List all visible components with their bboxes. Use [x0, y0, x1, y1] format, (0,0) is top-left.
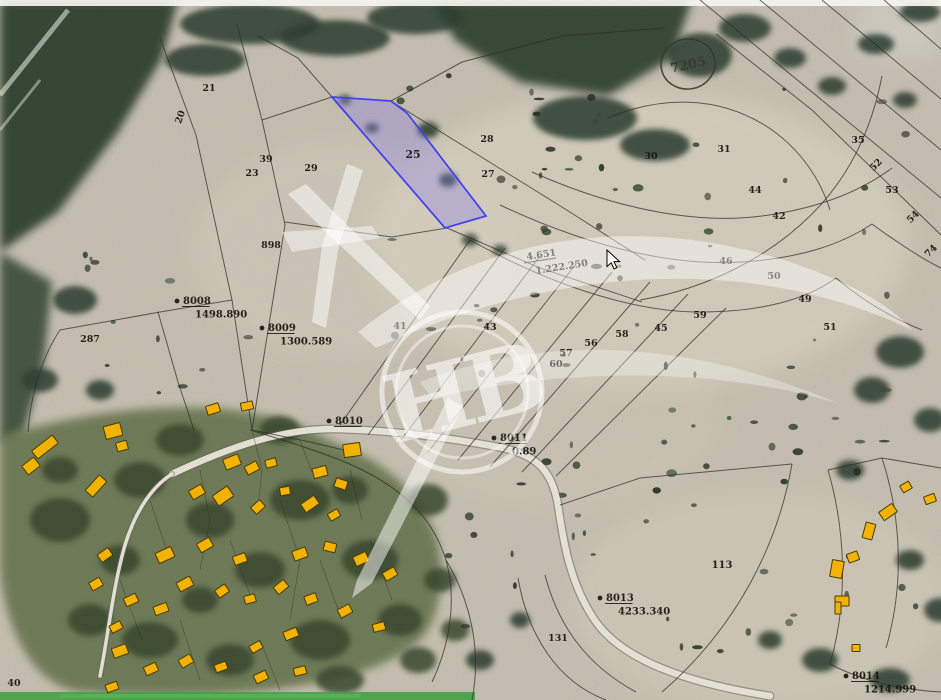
field-bush [693, 143, 700, 148]
tree-clump [316, 666, 364, 694]
field-bush [513, 582, 517, 589]
field-bush [813, 339, 816, 342]
parcel-number-label: 39 [259, 154, 273, 165]
cadastral-map-svg: 2021392329898287252728303135525354744442… [0, 0, 941, 700]
field-bush [780, 479, 788, 485]
field-bush [90, 260, 99, 265]
building-footprint [343, 442, 362, 457]
field-bush [653, 487, 661, 493]
survey-point-value: 1498.890 [195, 310, 247, 321]
tree-clump [896, 550, 924, 570]
field-bush [165, 278, 175, 284]
parcel-number-label: 44 [748, 185, 762, 196]
field-bush [157, 391, 161, 394]
tree-clump [114, 462, 166, 498]
survey-point-id: 8014 [852, 671, 880, 682]
field-bush [387, 238, 397, 241]
tree-clump [758, 631, 782, 649]
field-bush [717, 649, 724, 653]
survey-point-dot [598, 596, 603, 601]
tree-clump [206, 644, 254, 676]
field-bush [680, 643, 684, 651]
parcel-number-label: 23 [245, 168, 258, 179]
field-bush [583, 530, 586, 536]
field-bush [783, 178, 788, 183]
field-bush [445, 553, 452, 558]
survey-point-id: 8010 [335, 416, 363, 427]
parcel-number-label: 59 [693, 310, 707, 321]
tree-clump [441, 619, 469, 641]
tree-clump [290, 620, 350, 660]
tree-clump [466, 650, 494, 670]
top-white-strip [0, 0, 941, 6]
field-bush [661, 440, 667, 445]
field-bush [533, 112, 541, 117]
field-bush [793, 448, 804, 455]
field-bush [879, 440, 890, 443]
building-footprint [830, 560, 845, 579]
field-bush [704, 193, 711, 201]
survey-point-dot [260, 326, 265, 331]
tree-clump [53, 286, 97, 314]
field-bush [633, 184, 644, 191]
parcel-number-label: 56 [584, 338, 598, 349]
parcel-number-label: 58 [615, 329, 629, 340]
building-footprint [852, 645, 860, 652]
tree-clump [182, 587, 218, 613]
tree-clump [719, 14, 771, 42]
survey-point-value: 1214.999 [864, 685, 916, 696]
survey-point-dot [844, 674, 849, 679]
field-bush [575, 513, 581, 517]
parcel-number-label: 35 [851, 135, 864, 146]
parcel-number-label: 287 [80, 334, 100, 345]
building-footprint [835, 602, 841, 614]
parcel-number-label: 29 [304, 163, 318, 174]
field-bush [85, 265, 91, 272]
field-bush [516, 482, 526, 485]
field-bush [596, 223, 602, 230]
tree-clump [42, 457, 78, 483]
survey-point-value: 1300.589 [280, 337, 332, 348]
field-bush [898, 584, 906, 591]
field-bush [901, 131, 910, 138]
field-bush [83, 252, 88, 259]
field-bush [727, 416, 732, 420]
tree-clump [802, 648, 838, 672]
field-bush [760, 569, 769, 575]
field-bush [599, 164, 605, 171]
field-bush [587, 94, 595, 101]
tree-clump [876, 336, 924, 368]
tree-clump [400, 647, 436, 673]
field-bush [477, 319, 483, 322]
field-bush [591, 553, 596, 556]
parcel-number-label: 51 [823, 322, 836, 333]
tree-clump [893, 92, 917, 108]
field-bush [691, 424, 695, 427]
parcel-number-label: 31 [717, 144, 730, 155]
field-bush [199, 368, 205, 372]
parcel-number-label: 27 [481, 169, 494, 180]
field-bush [570, 441, 573, 448]
field-bush [853, 468, 860, 476]
field-bush [540, 226, 548, 233]
field-bush [861, 185, 868, 191]
survey-point-id: 8009 [268, 323, 296, 334]
tree-clump [86, 380, 114, 400]
field-bush [597, 113, 601, 118]
field-bush [746, 628, 752, 636]
parcel-number-label: 131 [548, 633, 568, 644]
tree-clump [818, 77, 846, 95]
field-bush [788, 424, 798, 430]
field-bush [573, 461, 581, 469]
field-bush [881, 388, 892, 392]
field-bush [592, 119, 599, 125]
field-bush [787, 366, 796, 370]
tree-clump [270, 480, 330, 520]
tree-clump [30, 498, 90, 542]
parcel-number-label: 30 [644, 151, 658, 162]
field-bush [470, 532, 477, 538]
tree-clump [858, 34, 894, 54]
field-bush [465, 512, 474, 520]
field-bush [613, 188, 618, 191]
field-bush [855, 440, 865, 444]
field-bush [446, 73, 452, 78]
field-bush [818, 224, 822, 232]
parcel-number-label: 28 [480, 134, 494, 145]
bottom-green-strip [60, 694, 360, 698]
field-bush [704, 228, 714, 234]
field-bush [490, 307, 497, 312]
field-bush [832, 417, 840, 420]
parcel-number-label: 45 [654, 323, 667, 334]
field-bush [89, 257, 92, 261]
tree-clump [533, 96, 637, 140]
field-bush [397, 97, 405, 104]
field-bush [529, 89, 533, 96]
field-bush [243, 335, 253, 339]
field-bush [643, 519, 649, 523]
field-bush [534, 98, 545, 101]
parcel-number-label: 53 [885, 185, 898, 196]
field-bush [884, 292, 890, 299]
survey-point-dot [327, 419, 332, 424]
field-bush [156, 335, 160, 342]
parcel-number-label: 898 [261, 240, 281, 251]
parcel-number-label: 21 [202, 83, 215, 94]
tree-clump [156, 424, 204, 456]
field-bush [785, 619, 793, 627]
field-bush [692, 645, 703, 649]
tree-clump [122, 622, 178, 658]
parcel-number-label: 25 [405, 148, 420, 161]
field-bush [512, 185, 517, 189]
field-bush [575, 155, 582, 161]
map-viewport[interactable]: 2021392329898287252728303135525354744442… [0, 0, 941, 700]
field-bush [572, 532, 575, 540]
field-bush [105, 364, 110, 367]
building-footprint [279, 486, 290, 496]
parcel-number-label: 42 [772, 211, 785, 222]
field-bush [769, 443, 776, 451]
field-bush [790, 613, 797, 616]
field-bush [635, 323, 639, 327]
field-bush [510, 551, 513, 558]
survey-point-id: 8013 [606, 593, 634, 604]
field-bush [542, 168, 548, 171]
field-bush [691, 503, 697, 507]
field-bush [565, 168, 574, 170]
survey-point-dot [175, 299, 180, 304]
survey-point-id: 8008 [183, 296, 211, 307]
field-bush [497, 176, 506, 184]
field-bush [750, 420, 758, 424]
parcel-number-label: 113 [712, 560, 733, 571]
survey-point-value: 4233.340 [618, 607, 670, 618]
tree-clump [367, 2, 463, 34]
field-bush [545, 147, 555, 152]
tree-clump [165, 44, 245, 76]
field-bush [461, 624, 471, 628]
parcel-number-label: 40 [7, 678, 21, 689]
field-bush [703, 463, 710, 469]
field-bush [668, 407, 676, 412]
parcel-number-label: 49 [798, 294, 812, 305]
field-bush [913, 603, 918, 609]
tree-clump [378, 604, 422, 636]
